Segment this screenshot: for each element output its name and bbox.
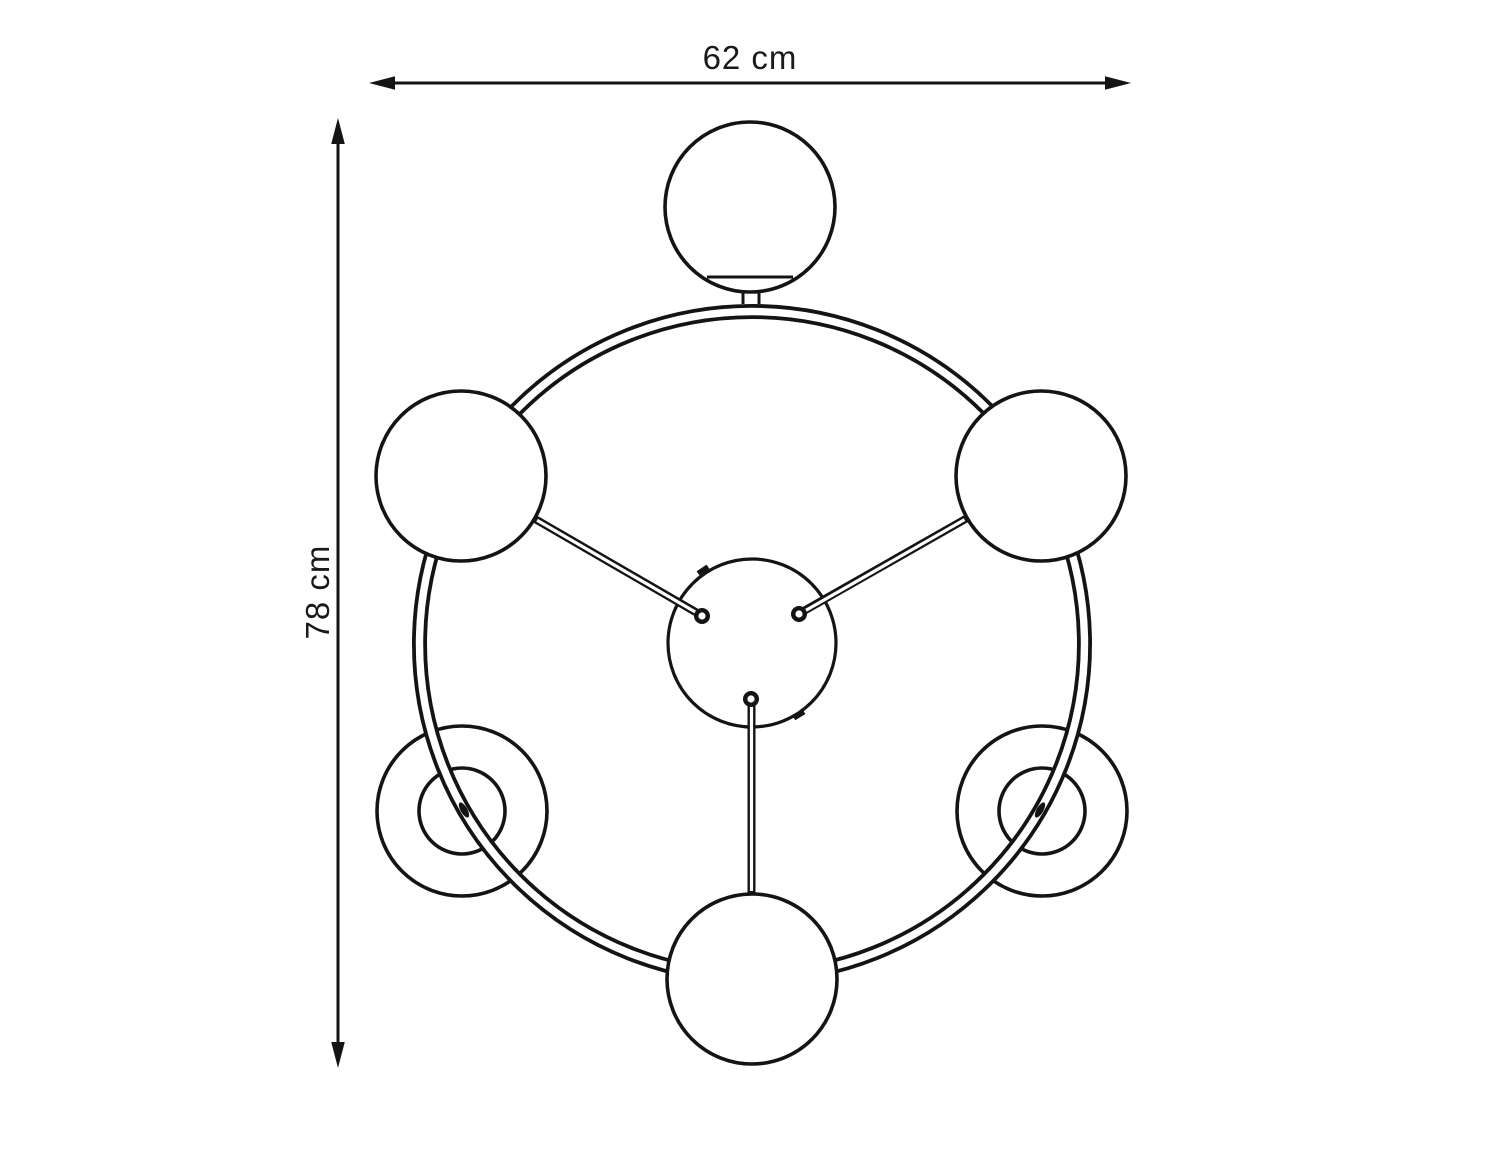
lamp-line-art	[0, 0, 1500, 1153]
arm-right-core	[803, 520, 965, 612]
arrowhead-right-icon	[1105, 76, 1131, 90]
arm-left-core	[537, 520, 697, 613]
globe-top	[665, 122, 835, 304]
width-dimension-label: 62 cm	[600, 40, 900, 76]
lamp-dimension-diagram: 62 cm 78 cm	[0, 0, 1500, 1153]
eyelet-bottom	[745, 693, 757, 705]
width-dimension-arrow	[369, 76, 1131, 90]
globe-right	[956, 391, 1126, 561]
arrowhead-up-icon	[331, 118, 345, 144]
arrowhead-left-icon	[369, 76, 395, 90]
eyelet-left	[696, 610, 708, 622]
globe-left	[376, 391, 546, 561]
globe-bottom	[667, 894, 837, 1064]
height-dimension-label: 78 cm	[300, 442, 336, 742]
eyelet-right	[793, 608, 805, 620]
globe-top-circle	[665, 122, 835, 292]
arrowhead-down-icon	[331, 1042, 345, 1068]
